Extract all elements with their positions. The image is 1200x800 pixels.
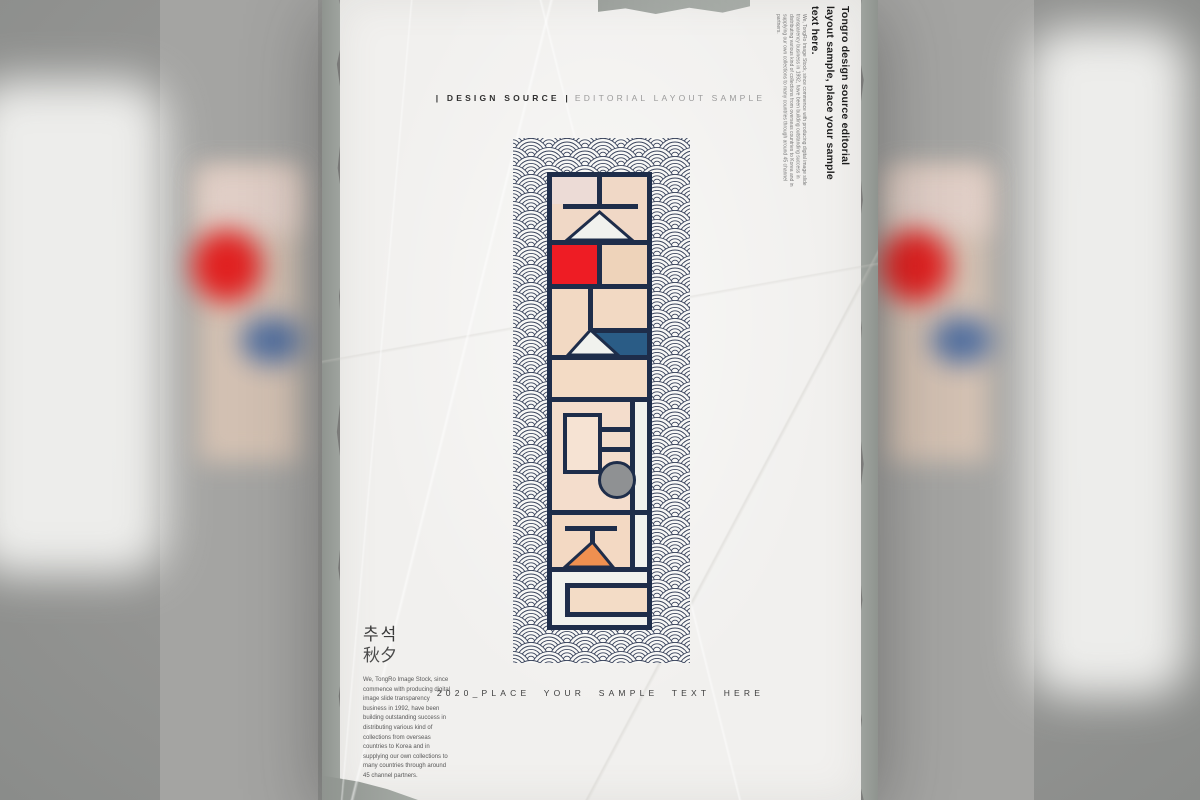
blur-blob-blue-left bbox=[241, 317, 303, 364]
side-caption-heading: Tongro design source editorial layout sa… bbox=[807, 6, 852, 196]
blur-blob-red-left bbox=[192, 230, 262, 302]
blur-blob-red-right bbox=[880, 230, 950, 302]
side-caption-body: We, TongRo Image Stock, since commence w… bbox=[775, 14, 808, 196]
side-caption: Tongro design source editorial layout sa… bbox=[775, 6, 853, 196]
header-caption-secondary: EDITORIAL LAYOUT SAMPLE bbox=[575, 93, 765, 103]
blur-blob-blue-right bbox=[931, 317, 993, 364]
poster: | DESIGN SOURCE | EDITORIAL LAYOUT SAMPL… bbox=[322, 0, 878, 800]
letter-seok bbox=[552, 287, 647, 360]
blur-blob-pink-left bbox=[198, 168, 300, 234]
backdrop-blur-panel-right bbox=[1028, 28, 1188, 696]
beige-band bbox=[552, 360, 647, 397]
hangul-typography-artwork bbox=[513, 138, 690, 663]
grey-moon-circle bbox=[600, 463, 635, 498]
red-block-row bbox=[552, 245, 647, 289]
left-caption-title-korean: 추석 bbox=[363, 624, 451, 645]
blur-blob-pink-right bbox=[888, 168, 990, 234]
backdrop-blur-panel-left bbox=[0, 80, 165, 575]
red-block bbox=[552, 245, 597, 284]
letter-chu bbox=[552, 172, 647, 245]
footer-caption: 2020_PLACE YOUR SAMPLE TEXT HERE bbox=[340, 688, 861, 698]
left-caption-title-hanja: 秋夕 bbox=[363, 645, 451, 667]
left-caption: 추석 秋夕 We, TongRo Image Stock, since comm… bbox=[363, 624, 451, 782]
hangul-letter-column bbox=[547, 172, 652, 630]
mockup-scene: | DESIGN SOURCE | EDITORIAL LAYOUT SAMPL… bbox=[0, 0, 1200, 800]
header-caption-primary: | DESIGN SOURCE | bbox=[436, 93, 571, 103]
